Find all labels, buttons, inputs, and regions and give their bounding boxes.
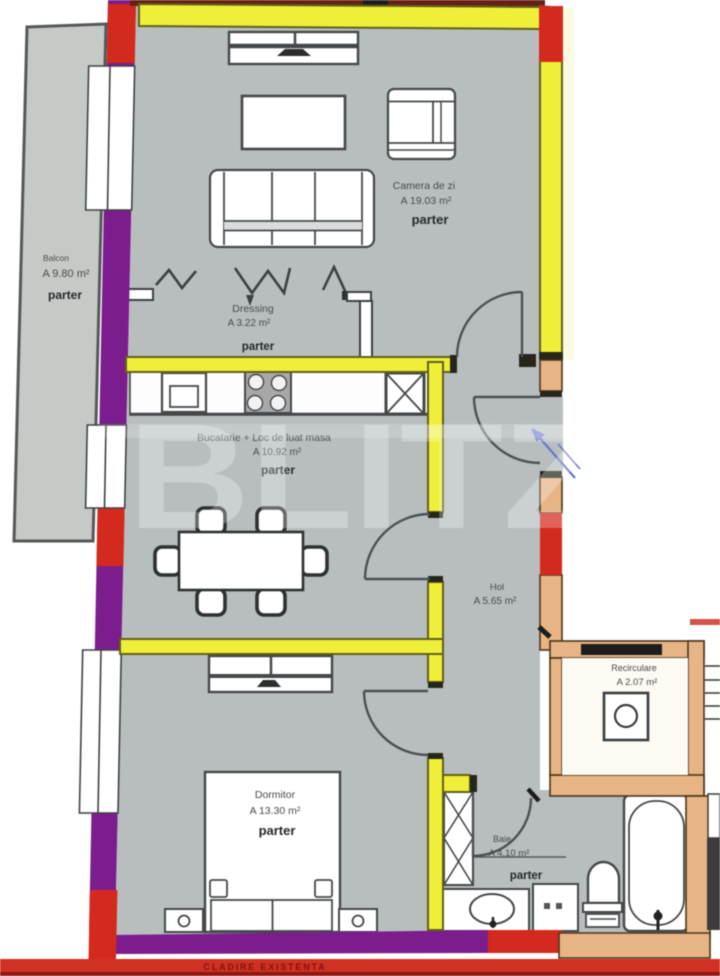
svg-text:A 19.03 m²: A 19.03 m²: [401, 195, 452, 207]
svg-text:A 5.65 m²: A 5.65 m²: [474, 596, 517, 607]
svg-text:parter: parter: [510, 870, 543, 882]
svg-text:parter: parter: [48, 288, 82, 302]
svg-text:A 9.80 m²: A 9.80 m²: [42, 268, 89, 280]
svg-text:A 13.30 m²: A 13.30 m²: [250, 805, 301, 817]
svg-text:parter: parter: [259, 823, 296, 838]
svg-text:parter: parter: [412, 212, 449, 227]
svg-text:Dormitor: Dormitor: [255, 789, 296, 801]
svg-text:Hol: Hol: [490, 582, 504, 593]
svg-text:CLADIRE EXISTENTA: CLADIRE EXISTENTA: [204, 962, 327, 972]
svg-text:BLITZ: BLITZ: [128, 392, 606, 560]
svg-text:A 2.07 m²: A 2.07 m²: [617, 677, 658, 688]
svg-text:Balcon: Balcon: [43, 253, 69, 263]
svg-text:Baie: Baie: [493, 834, 511, 844]
svg-text:Recirculare: Recirculare: [611, 663, 657, 673]
svg-text:A 4.10 m²: A 4.10 m²: [489, 848, 530, 859]
svg-text:A 3.22 m²: A 3.22 m²: [228, 318, 271, 329]
svg-text:Dressing: Dressing: [232, 303, 274, 315]
svg-text:parter: parter: [242, 341, 275, 353]
svg-text:Camera de zi: Camera de zi: [393, 180, 455, 192]
